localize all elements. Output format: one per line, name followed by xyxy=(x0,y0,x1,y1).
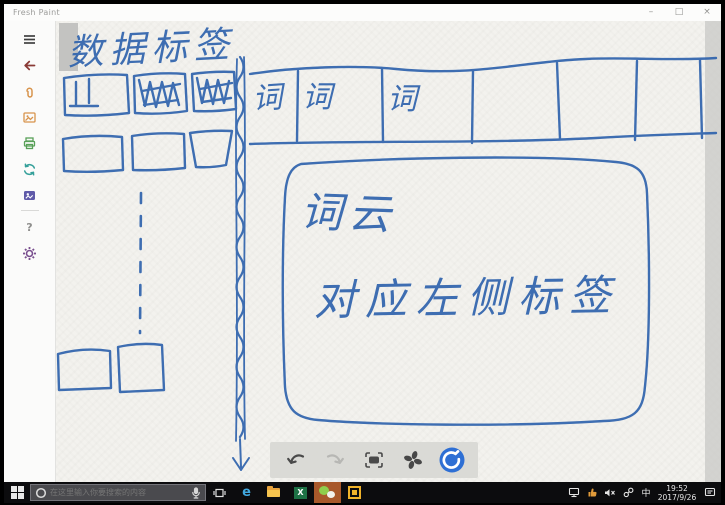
system-tray: 中 19:52 2017/9/26 xyxy=(565,482,721,503)
task-view-icon xyxy=(213,487,226,499)
sketch-dashed-line xyxy=(140,193,141,333)
drawing-canvas[interactable]: 数据标签 xyxy=(56,21,721,482)
minimize-button[interactable]: – xyxy=(637,4,665,21)
sketch-divider-arrow xyxy=(233,57,249,470)
dingtalk-icon-inner xyxy=(352,490,357,495)
sketch-bottom-boxes xyxy=(58,344,164,392)
sketch-title-text: 数据标签 xyxy=(66,24,236,74)
search-input[interactable] xyxy=(47,488,191,497)
ink-sketch: 数据标签 xyxy=(56,21,721,482)
excel-icon: X xyxy=(294,487,307,499)
taskbar: e X xyxy=(4,482,721,503)
redo-icon xyxy=(325,452,345,468)
refresh-icon xyxy=(22,162,37,177)
canvas-toolbar xyxy=(270,442,478,478)
dingtalk-icon xyxy=(348,486,361,499)
dingtalk-button[interactable] xyxy=(341,482,368,503)
taskbar-clock[interactable]: 19:52 2017/9/26 xyxy=(655,484,699,502)
fit-screen-button[interactable] xyxy=(360,446,388,474)
sketch-cloud-note: 对应左侧标签 xyxy=(313,271,620,325)
file-explorer-icon xyxy=(267,488,280,497)
freshpaint-window: Fresh Paint – □ × xyxy=(4,4,721,482)
fan-brush-button[interactable] xyxy=(399,446,427,474)
thumb-icon xyxy=(587,487,598,498)
file-explorer-button[interactable] xyxy=(260,482,287,503)
window-body: ? xyxy=(4,21,721,482)
speaker-mute-icon xyxy=(604,488,616,498)
clean-brush-button[interactable] xyxy=(438,446,466,474)
wechat-icon xyxy=(319,486,337,500)
close-button[interactable]: × xyxy=(693,4,721,21)
edge-button[interactable]: e xyxy=(233,482,260,503)
start-button[interactable] xyxy=(4,482,30,503)
restore-button[interactable]: □ xyxy=(665,4,693,21)
photo-icon xyxy=(22,110,37,125)
sketch-cell-word-2: 词 xyxy=(302,80,336,115)
sketch-cell-word-3: 词 xyxy=(387,82,421,117)
back-arrow-icon xyxy=(22,58,37,73)
windows-logo-icon xyxy=(11,486,24,499)
menu-button[interactable] xyxy=(17,26,43,52)
security-tray-button[interactable] xyxy=(583,482,601,503)
titlebar: Fresh Paint – □ × xyxy=(4,4,721,21)
help-icon: ? xyxy=(26,221,32,234)
gallery-button[interactable] xyxy=(17,182,43,208)
clean-brush-icon xyxy=(439,447,465,473)
photo-tool-button[interactable] xyxy=(17,104,43,130)
taskbar-search[interactable] xyxy=(30,484,206,501)
task-view-button[interactable] xyxy=(206,482,233,503)
sketch-row2-boxes xyxy=(63,131,232,172)
window-controls: – □ × xyxy=(637,4,721,21)
link-icon xyxy=(623,487,634,498)
paperclip-icon xyxy=(22,84,37,99)
excel-button[interactable]: X xyxy=(287,482,314,503)
clock-date: 2017/9/26 xyxy=(655,493,699,502)
ime-icon: 中 xyxy=(641,486,650,499)
sketch-row1-boxes xyxy=(64,72,236,116)
edge-icon: e xyxy=(242,486,251,499)
print-button[interactable] xyxy=(17,130,43,156)
sketch-cell-word-1: 词 xyxy=(251,80,287,117)
window-title: Fresh Paint xyxy=(4,8,60,17)
back-button[interactable] xyxy=(17,52,43,78)
gear-icon xyxy=(22,246,37,261)
network-tray-button[interactable] xyxy=(565,482,583,503)
fan-brush-icon xyxy=(403,450,423,470)
clock-time: 19:52 xyxy=(655,484,699,493)
menu-icon xyxy=(22,32,37,47)
pc-network-icon xyxy=(568,487,580,498)
settings-button[interactable] xyxy=(17,240,43,266)
wechat-bubble-small xyxy=(327,491,335,498)
refresh-button[interactable] xyxy=(17,156,43,182)
wechat-button[interactable] xyxy=(314,482,341,503)
sidebar: ? xyxy=(4,21,56,482)
volume-tray-button[interactable] xyxy=(601,482,619,503)
sketch-cloud-title: 词云 xyxy=(300,187,398,239)
sidebar-divider xyxy=(21,210,39,211)
undo-button[interactable] xyxy=(282,446,310,474)
help-button[interactable]: ? xyxy=(17,214,43,240)
action-center-icon xyxy=(704,487,716,498)
fit-screen-icon xyxy=(364,451,384,469)
paperclip-tool-button[interactable] xyxy=(17,78,43,104)
ime-indicator[interactable]: 中 xyxy=(637,482,655,503)
link-tray-button[interactable] xyxy=(619,482,637,503)
undo-icon xyxy=(286,452,306,468)
screen: Fresh Paint – □ × xyxy=(0,0,725,505)
printer-icon xyxy=(22,136,37,151)
action-center-button[interactable] xyxy=(699,482,721,503)
gallery-icon xyxy=(22,188,37,203)
microphone-icon[interactable] xyxy=(191,487,201,499)
cortana-icon xyxy=(35,487,47,499)
redo-button[interactable] xyxy=(321,446,349,474)
